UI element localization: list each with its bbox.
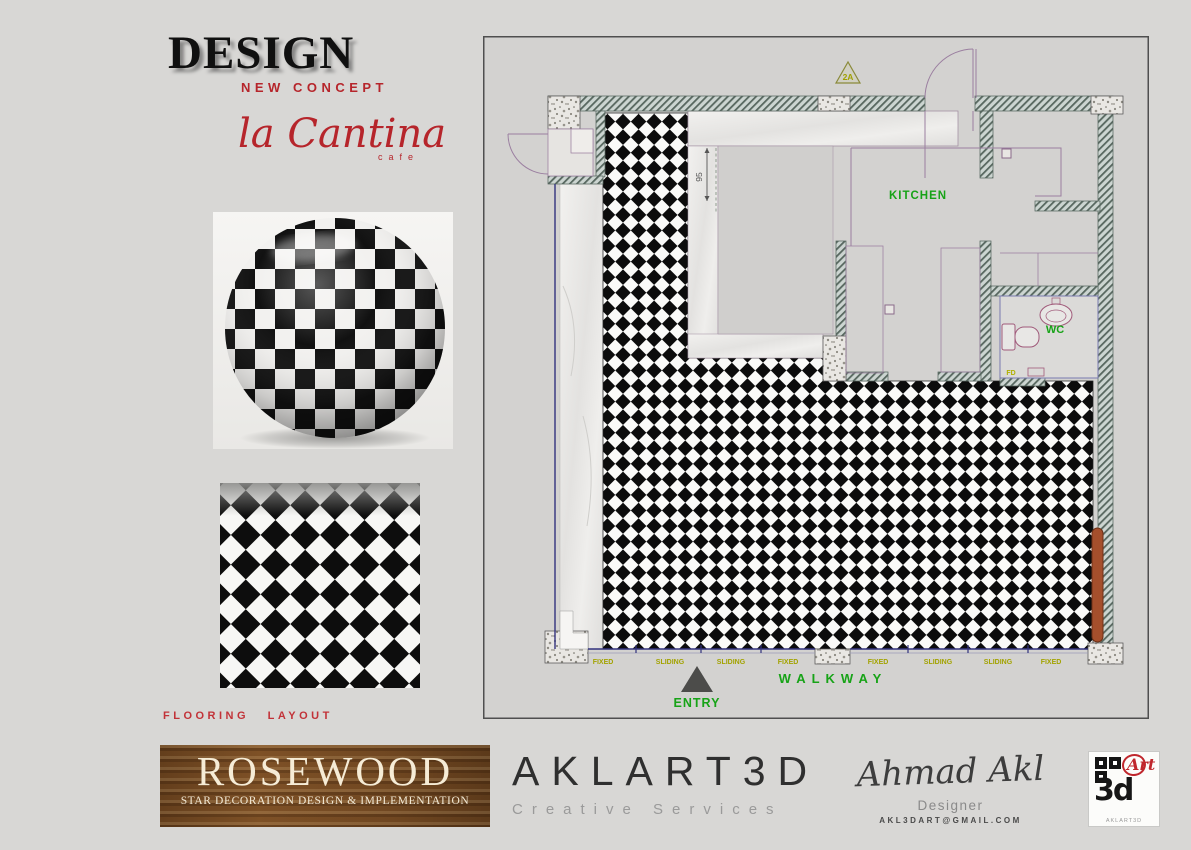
svg-text:2A: 2A <box>843 72 854 82</box>
logo-pip-icon <box>1095 757 1107 769</box>
floor-plan-drawing: 95 2A KITCHEN WC FD ENTRY WALKWAY FIXED … <box>483 36 1150 720</box>
aklart3d-logo-badge: Art 3d AKLART3D <box>1088 751 1160 827</box>
window-label: FIXED <box>593 659 614 666</box>
studio-tagline: Creative Services <box>512 801 822 818</box>
walkway-label: WALKWAY <box>779 671 888 686</box>
presentation-board: { "header": { "design_title": "DESIGN", … <box>0 0 1191 850</box>
svg-text:95: 95 <box>694 172 704 182</box>
logo-art-text: Art <box>1127 755 1155 774</box>
rosewood-logo: ROSEWOOD STAR DECORATION DESIGN & IMPLEM… <box>160 745 490 827</box>
flooring-layout-label: FLOORING LAYOUT <box>163 710 333 722</box>
cafe-name: la Cantina <box>238 112 433 156</box>
wc-room <box>1000 296 1098 378</box>
designer-signature: Ahmad Akl <box>837 748 1063 796</box>
wc-label: WC <box>1046 324 1064 336</box>
studio-name: AKLART3D <box>512 748 822 795</box>
logo-pip-icon <box>1109 757 1121 769</box>
checker-sphere-image <box>213 212 453 449</box>
design-subtitle: NEW CONCEPT <box>168 80 392 95</box>
window-label: SLIDING <box>924 659 953 666</box>
designer-block: Ahmad Akl Designer AKL3DART@GMAIL.COM <box>838 752 1063 825</box>
logo-3d-text: 3d <box>1094 776 1132 806</box>
floor-drain-label: FD <box>1006 370 1015 377</box>
bench <box>1092 528 1103 642</box>
flooring-sample-swatch <box>220 483 420 688</box>
window-label: FIXED <box>868 659 889 666</box>
toilet-icon <box>1002 324 1015 350</box>
entry-steps <box>548 129 593 176</box>
window-label: SLIDING <box>656 659 685 666</box>
studio-logo: AKLART3D Creative Services <box>512 748 822 818</box>
window-label: SLIDING <box>984 659 1013 666</box>
sink-icon <box>1040 304 1072 326</box>
kitchen-label: KITCHEN <box>889 190 947 202</box>
window-label: FIXED <box>1041 659 1062 666</box>
window-label: FIXED <box>778 659 799 666</box>
marble-strip-left <box>560 184 603 649</box>
rosewood-tagline: STAR DECORATION DESIGN & IMPLEMENTATION <box>160 795 490 807</box>
designer-role: Designer <box>838 798 1063 813</box>
cafe-logo: la Cantina cafe <box>238 112 433 162</box>
window-label: SLIDING <box>717 659 746 666</box>
material-sphere-render <box>213 212 453 449</box>
entry-label: ENTRY <box>674 696 721 710</box>
rosewood-name: ROSEWOOD <box>160 748 490 795</box>
design-title: DESIGN <box>168 30 392 77</box>
design-logo: DESIGN NEW CONCEPT <box>168 30 392 95</box>
designer-email: AKL3DART@GMAIL.COM <box>838 816 1063 825</box>
floor-plan-panel: 95 2A KITCHEN WC FD ENTRY WALKWAY FIXED … <box>483 36 1150 720</box>
logo-caption: AKLART3D <box>1089 818 1159 824</box>
swatch-top-fade <box>220 483 420 688</box>
